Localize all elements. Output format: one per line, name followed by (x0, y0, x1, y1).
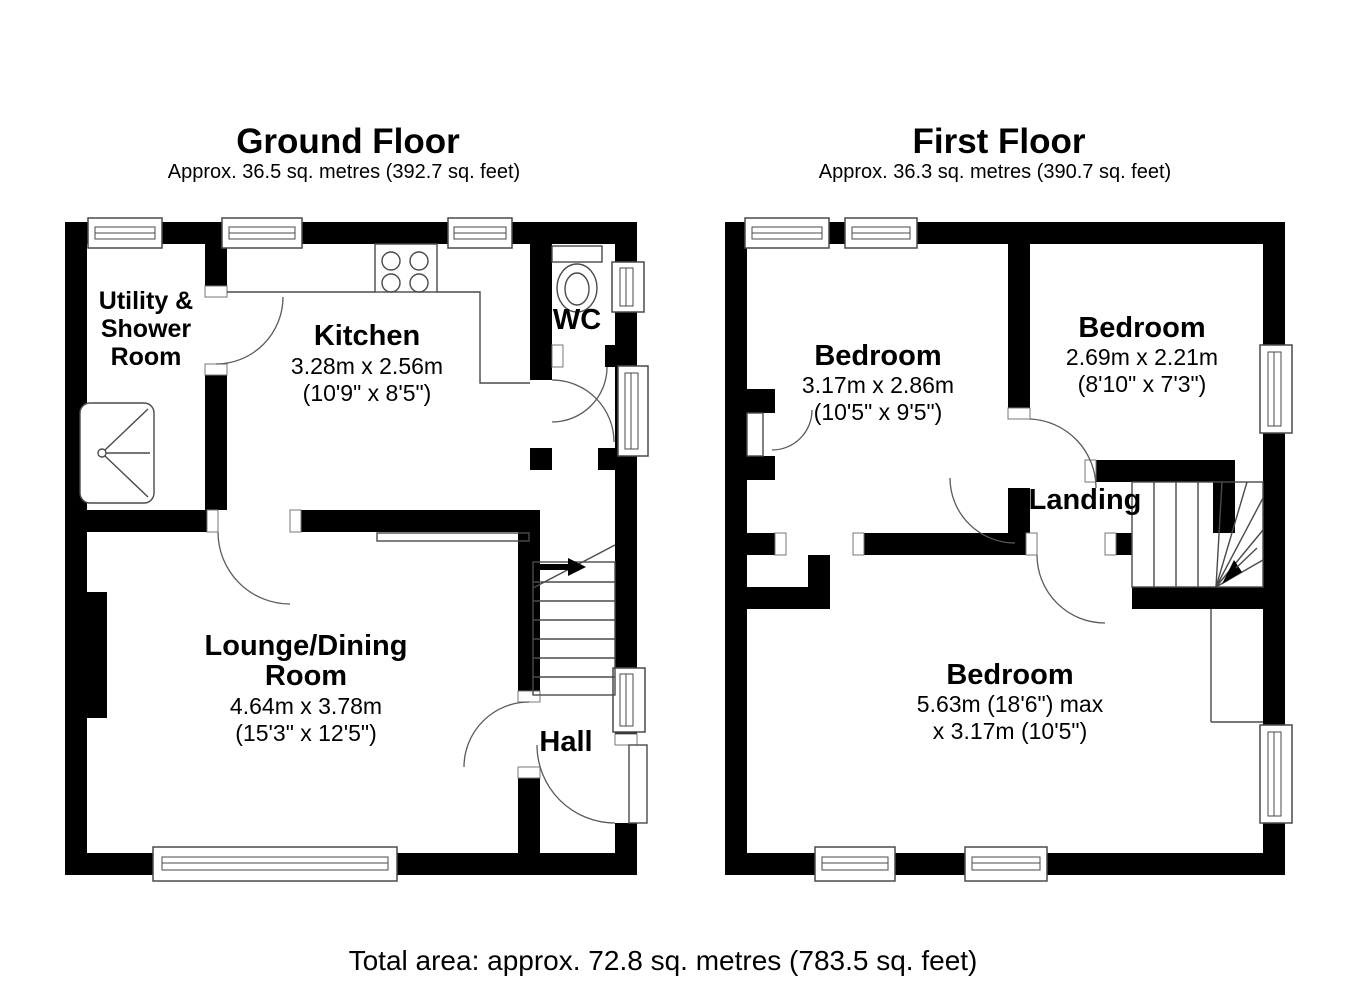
kitchen-window-left (222, 218, 302, 248)
chimney-breast (87, 592, 107, 718)
door-stop (1008, 408, 1030, 419)
door-stop (207, 510, 218, 532)
bedroom-main-window-left (815, 847, 895, 881)
door-stop (518, 691, 540, 702)
bedroom-front-window-right (845, 218, 917, 248)
first-floor-title: First Floor (912, 124, 1085, 161)
lobby-window (618, 366, 648, 456)
stairs-down-arrowhead (1222, 560, 1242, 584)
chimney-breast (747, 456, 775, 480)
toilet (552, 246, 602, 312)
door-stop (615, 734, 637, 745)
kitchen-window-right (448, 218, 512, 248)
bedroom-main-side-window (1260, 725, 1292, 823)
wc-window (612, 262, 644, 312)
lounge-door-arc (218, 532, 290, 604)
floorplan-drawing (0, 0, 1350, 982)
hall-label: Hall (539, 727, 592, 757)
door-stop (775, 533, 786, 555)
kitchen-door-arc (216, 297, 283, 364)
bedroom-main-window-right (965, 847, 1047, 881)
first-floor-plan (725, 218, 1292, 881)
utility-window (88, 218, 162, 248)
door-stop (205, 286, 227, 297)
door-stop (853, 533, 864, 555)
door-stop (205, 364, 227, 375)
ground-floor-title: Ground Floor (236, 124, 460, 161)
door-stop (290, 510, 301, 532)
wc-door-arc (552, 367, 607, 422)
door-stop (1105, 533, 1116, 555)
bedroom-front-window-left (745, 218, 829, 248)
storage-outline (1211, 609, 1263, 722)
wc-label: WC (553, 305, 601, 335)
total-area-label: Total area: approx. 72.8 sq. metres (783… (349, 946, 978, 975)
chimney-recess (747, 413, 763, 456)
staircase-ground (533, 545, 615, 695)
bedroom-main-door-arc (1037, 555, 1105, 623)
bedroom-rear-window (1260, 345, 1292, 433)
lounge-window (153, 847, 397, 881)
stairs-window (613, 668, 645, 732)
door-stop (1026, 533, 1037, 555)
front-door-leaf (629, 745, 647, 823)
lobby-door-arc (552, 380, 614, 442)
landing-label: Landing (1029, 485, 1142, 515)
shower-tray (80, 403, 154, 503)
ground-floor-subtitle: Approx. 36.5 sq. metres (392.7 sq. feet) (168, 162, 520, 183)
chimney-breast (747, 389, 775, 413)
floorplan-page: Ground Floor Approx. 36.5 sq. metres (39… (0, 0, 1350, 982)
hall-lounge-door-arc (464, 702, 529, 767)
cupboard-door-arc (772, 410, 812, 450)
stairs-up-arrowhead (568, 558, 586, 576)
door-stop (518, 767, 540, 778)
door-stop (552, 345, 563, 367)
first-floor-subtitle: Approx. 36.3 sq. metres (390.7 sq. feet) (819, 162, 1171, 183)
hob (375, 244, 437, 292)
staircase-first (1132, 482, 1263, 587)
